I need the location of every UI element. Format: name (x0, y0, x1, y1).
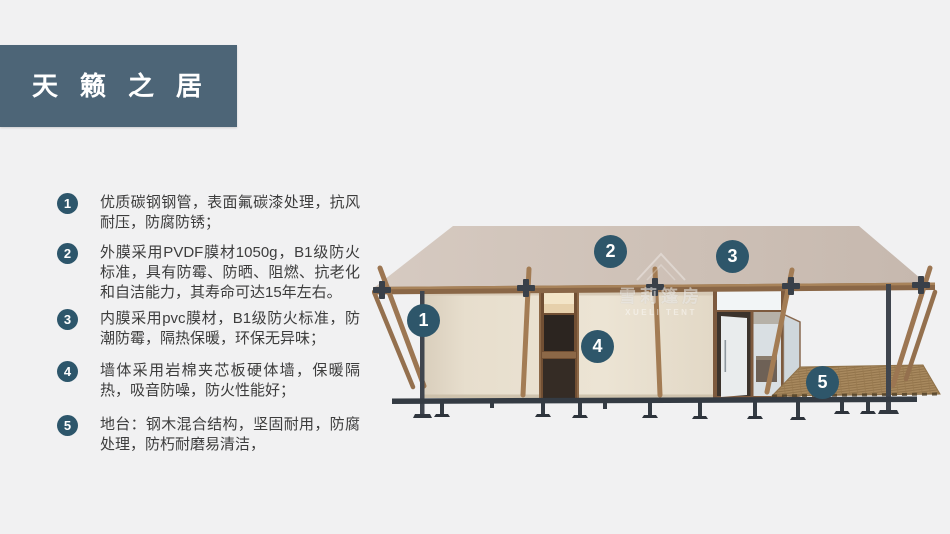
feature-item-2: 2 外膜采用PVDF膜材1050g，B1级防火标准，具有防霉、防晒、阻燃、抗老化… (57, 243, 367, 303)
diagram-badge-1: 1 (407, 304, 440, 337)
feature-number-badge: 1 (57, 193, 78, 214)
base-frame (392, 397, 917, 421)
feature-text: 地台：钢木混合结构，坚固耐用，防腐处理，防朽耐磨易清洁， (100, 415, 360, 455)
feature-number-badge: 5 (57, 415, 78, 436)
feature-text: 优质碳钢钢管，表面氟碳漆处理，抗风耐压，防腐防锈； (100, 193, 360, 233)
feature-number-badge: 4 (57, 361, 78, 382)
diagram-badge-4: 4 (581, 330, 614, 363)
feature-number-badge: 3 (57, 309, 78, 330)
diagram-badge-2: 2 (594, 235, 627, 268)
feature-text: 内膜采用pvc膜材，B1级防火标准，防潮防霉，隔热保暖，环保无异味； (100, 309, 360, 349)
feature-text: 外膜采用PVDF膜材1050g，B1级防火标准，具有防霉、防晒、阻燃、抗老化和自… (100, 243, 360, 303)
diagram-badge-5: 5 (806, 366, 839, 399)
slide: 天籁之居 1 优质碳钢钢管，表面氟碳漆处理，抗风耐压，防腐防锈； 2 外膜采用P… (0, 0, 950, 534)
deck-platform (772, 365, 940, 396)
page-title: 天籁之居 (0, 45, 237, 127)
feature-number-badge: 2 (57, 243, 78, 264)
diagram-badge-3: 3 (716, 240, 749, 273)
feature-item-1: 1 优质碳钢钢管，表面氟碳漆处理，抗风耐压，防腐防锈； (57, 193, 367, 233)
feature-item-4: 4 墙体采用岩棉夹芯板硬体墙，保暖隔热，吸音防噪，防火性能好； (57, 361, 367, 401)
feature-text: 墙体采用岩棉夹芯板硬体墙，保暖隔热，吸音防噪，防火性能好； (100, 361, 360, 401)
tent-roof (375, 226, 927, 287)
title-banner: 天籁之居 (0, 45, 237, 127)
tent-illustration (372, 212, 950, 434)
feature-item-5: 5 地台：钢木混合结构，坚固耐用，防腐处理，防朽耐磨易清洁， (57, 415, 367, 455)
feature-item-3: 3 内膜采用pvc膜材，B1级防火标准，防潮防霉，隔热保暖，环保无异味； (57, 309, 367, 349)
tent-door (539, 287, 579, 401)
